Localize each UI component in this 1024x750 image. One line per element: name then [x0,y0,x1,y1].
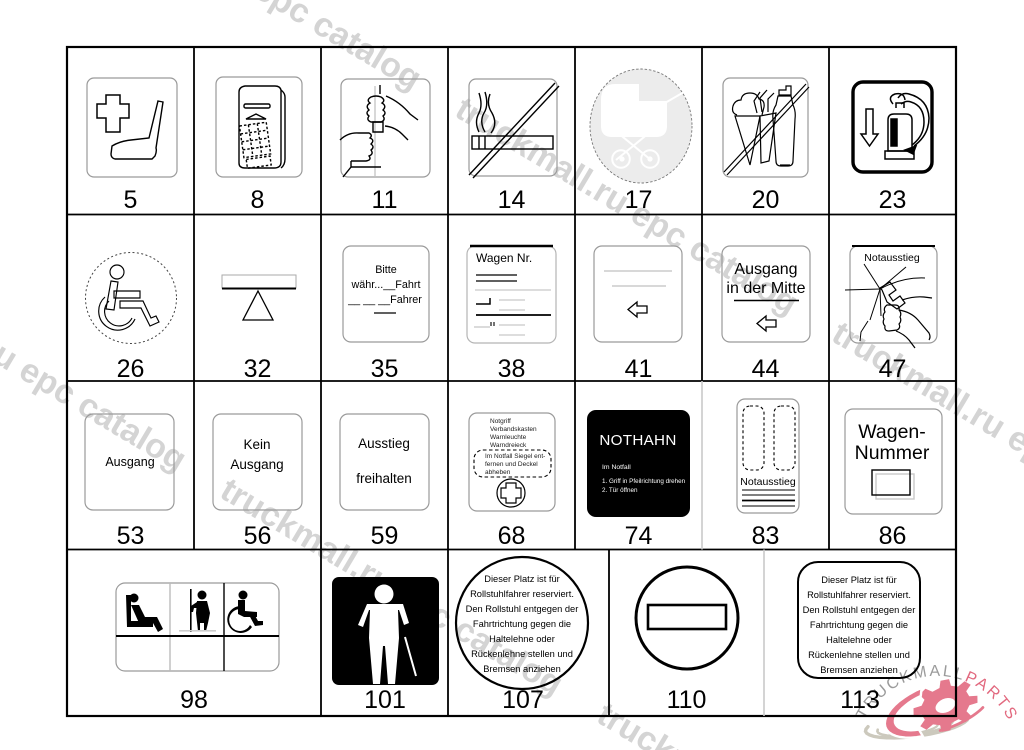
svg-text:Warnleuchte: Warnleuchte [490,434,527,441]
svg-text:fernen und Deckel: fernen und Deckel [485,461,538,468]
svg-text:Rückenlehne stellen und: Rückenlehne stellen und [471,649,573,659]
svg-text:2. Tür öffnen: 2. Tür öffnen [602,487,638,494]
svg-text:20: 20 [752,186,780,214]
svg-text:56: 56 [244,522,272,550]
svg-text:83: 83 [752,522,780,550]
svg-text:23: 23 [879,186,907,214]
svg-text:32: 32 [244,355,272,383]
svg-text:Rollstuhlfahrer reserviert.: Rollstuhlfahrer reserviert. [807,590,911,600]
svg-text:Nummer: Nummer [855,442,930,464]
svg-text:86: 86 [879,522,907,550]
svg-text:NOTHAHN: NOTHAHN [599,432,676,449]
svg-text:Kein: Kein [243,437,270,452]
svg-text:17: 17 [625,186,653,214]
svg-text:Im Notfall Siegel ent-: Im Notfall Siegel ent- [485,453,545,460]
svg-text:26: 26 [117,355,145,383]
svg-text:74: 74 [625,522,653,550]
svg-text:Ausstieg: Ausstieg [358,436,410,451]
svg-text:59: 59 [371,522,399,550]
svg-text:abheben: abheben [485,469,511,476]
svg-text:Dieser Platz ist für: Dieser Platz ist für [484,574,559,584]
svg-text:Wagen Nr.: Wagen Nr. [476,251,532,265]
svg-text:Rollstuhlfahrer reserviert.: Rollstuhlfahrer reserviert. [470,589,574,599]
svg-text:5: 5 [124,186,138,214]
svg-text:Bremsen anziehen: Bremsen anziehen [820,665,898,675]
svg-text:Notgriff: Notgriff [490,418,511,425]
svg-text:44: 44 [752,355,780,383]
svg-text:Rückenlehne stellen und: Rückenlehne stellen und [808,650,910,660]
svg-text:68: 68 [498,522,526,550]
svg-text:Ausgang: Ausgang [105,455,154,469]
svg-text:Wagen-: Wagen- [858,421,926,443]
svg-text:14: 14 [498,186,526,214]
svg-text:Den Rollstuhl entgegen der: Den Rollstuhl entgegen der [803,605,916,615]
svg-text:107: 107 [502,686,544,714]
svg-text:Verbandskasten: Verbandskasten [490,426,537,433]
svg-text:47: 47 [879,355,907,383]
svg-text:Warndreieck: Warndreieck [490,442,527,449]
svg-text:Fahrtrichtung gegen die: Fahrtrichtung gegen die [473,619,571,629]
svg-text:41: 41 [625,355,653,383]
svg-text:38: 38 [498,355,526,383]
svg-text:35: 35 [371,355,399,383]
svg-text:währ...__Fahrt: währ...__Fahrt [350,279,420,291]
svg-text:Notausstieg: Notausstieg [740,476,796,488]
svg-text:110: 110 [667,686,707,714]
svg-text:Haltelehne oder: Haltelehne oder [489,634,555,644]
svg-text:Ausgang: Ausgang [230,457,283,472]
svg-text:1. Griff in Pfeilrichtung dreh: 1. Griff in Pfeilrichtung drehen [602,478,686,485]
svg-text:Notausstieg: Notausstieg [864,252,920,264]
svg-text:Dieser Platz ist für: Dieser Platz ist für [821,575,896,585]
svg-text:113: 113 [840,686,880,714]
svg-text:8: 8 [251,186,265,214]
svg-text:Bremsen anziehen: Bremsen anziehen [483,664,561,674]
svg-text:Fahrtrichtung gegen die: Fahrtrichtung gegen die [810,620,908,630]
svg-text:98: 98 [180,686,208,714]
svg-text:Den Rollstuhl entgegen der: Den Rollstuhl entgegen der [466,604,579,614]
svg-text:Haltelehne oder: Haltelehne oder [826,635,892,645]
svg-text:freihalten: freihalten [356,471,412,486]
svg-text:Im Notfall: Im Notfall [602,464,631,471]
svg-text:in der Mitte: in der Mitte [726,280,805,297]
svg-text:11: 11 [372,186,398,214]
svg-text:__ __ __Fahrer: __ __ __Fahrer [347,294,422,306]
svg-text:Bitte: Bitte [375,264,397,276]
svg-text:53: 53 [117,522,145,550]
svg-text:101: 101 [364,686,406,714]
svg-text:Ausgang: Ausgang [734,261,797,278]
